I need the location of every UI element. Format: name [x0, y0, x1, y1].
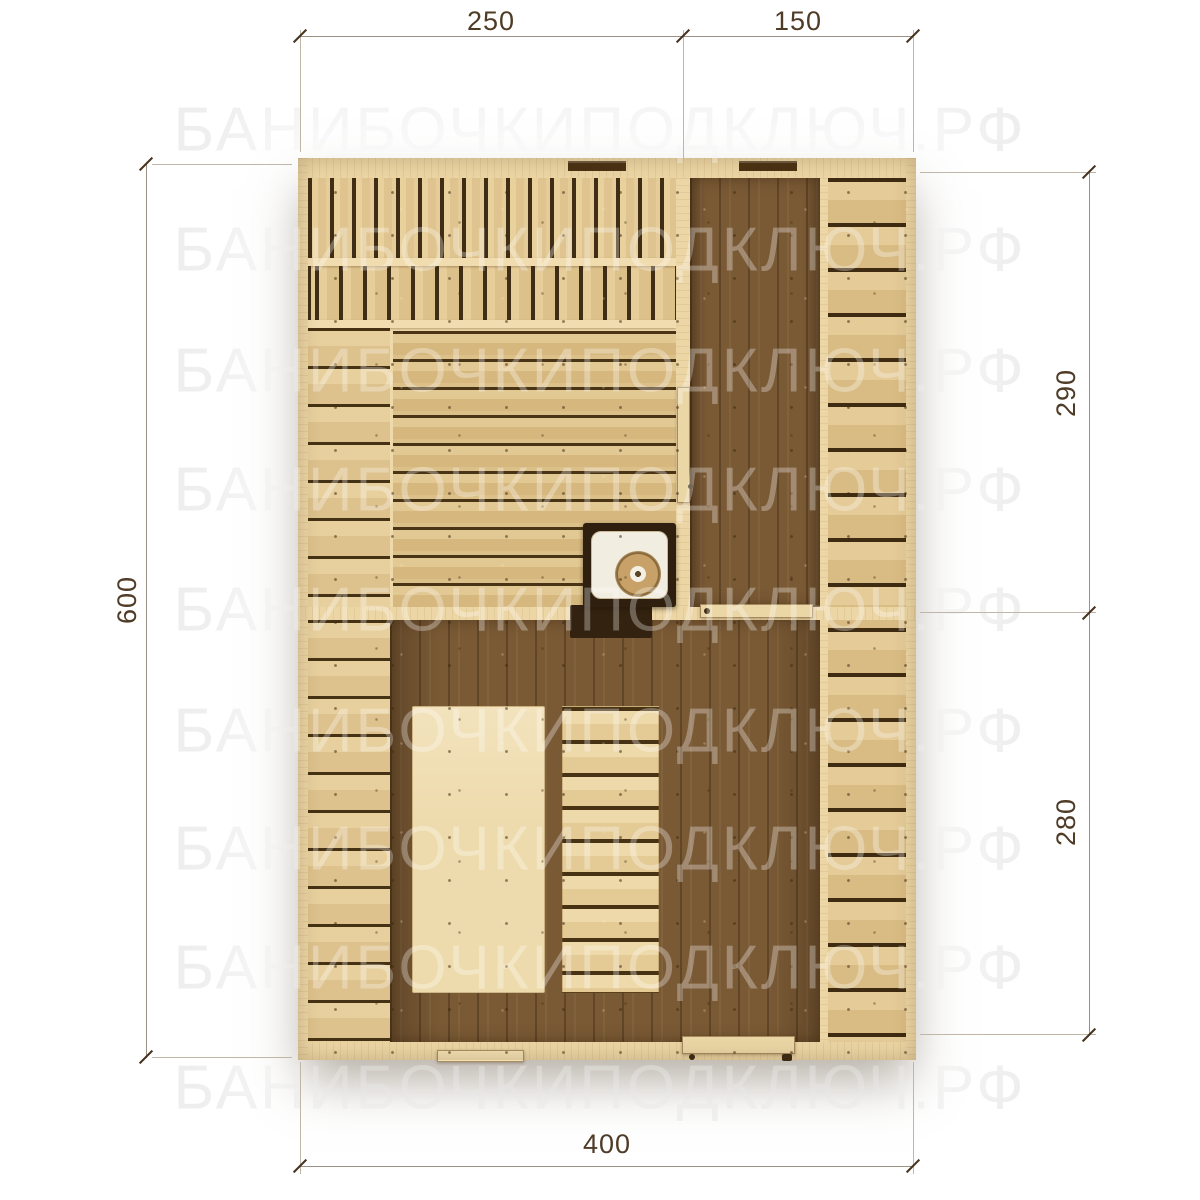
sauna-side-bench: [308, 328, 390, 607]
floor-plan-canvas: БАНИБОЧКИПОДКЛЮЧ.РФ БАНИБОЧКИПОДКЛЮЧ.РФ …: [0, 0, 1200, 1200]
extension-line: [920, 612, 1096, 613]
extension-line: [683, 30, 684, 160]
extension-line: [920, 172, 1096, 173]
dim-label-right-bottom: 280: [1050, 762, 1082, 882]
table: [412, 706, 545, 993]
dim-label-top-right: 150: [738, 5, 858, 37]
extension-line: [300, 30, 301, 152]
dim-label-right-top: 290: [1050, 333, 1082, 453]
dim-line-left: [146, 164, 147, 1058]
stove-chimney-ring: [616, 552, 660, 596]
entrance-door: [682, 1036, 795, 1054]
watermark-text: БАНИБОЧКИПОДКЛЮЧ.РФ: [0, 95, 1200, 166]
extension-line: [152, 1057, 292, 1058]
stove: [583, 523, 676, 607]
dim-tick: [1082, 1028, 1096, 1042]
bench-rail: [308, 258, 676, 266]
dim-tick: [139, 157, 153, 171]
dim-tick: [139, 1050, 153, 1064]
hallway-door: [700, 604, 813, 618]
dim-label-left: 600: [111, 540, 143, 660]
stove-hearth: [570, 605, 652, 638]
dim-tick: [906, 29, 920, 43]
dim-tick: [293, 1159, 307, 1173]
extension-line: [300, 1062, 301, 1174]
watermark-text: БАНИБОЧКИПОДКЛЮЧ.РФ: [0, 95, 1200, 166]
watermark-text: БАНИБОЧКИПОДКЛЮЧ.РФ: [0, 1053, 1200, 1124]
movable-bench: [562, 706, 659, 993]
top-window-1: [568, 161, 626, 171]
dim-tick: [293, 29, 307, 43]
bathhouse-floor-plan: [298, 158, 916, 1060]
stove-top: [591, 531, 668, 599]
dim-line-right: [1089, 172, 1090, 1035]
extension-line: [913, 1062, 914, 1174]
dim-tick: [1082, 606, 1096, 620]
bottom-window-sill: [437, 1050, 524, 1062]
entrance-door-handle: [689, 1054, 695, 1060]
dim-tick: [676, 29, 690, 43]
hallway-floor: [690, 178, 820, 607]
sauna-upper-bench: [308, 178, 676, 258]
stove-chimney-hole: [630, 566, 646, 582]
extension-line: [152, 164, 292, 165]
top-window-2: [739, 161, 797, 171]
bench-rail: [308, 320, 676, 328]
dim-tick: [1082, 165, 1096, 179]
dim-line-top: [300, 36, 913, 37]
extension-line: [913, 30, 914, 152]
sauna-door-handle: [688, 484, 693, 489]
dim-label-bottom: 400: [547, 1128, 667, 1160]
hallway-door-handle: [704, 608, 710, 614]
bottom-wall: [298, 1042, 916, 1060]
dim-tick: [906, 1159, 920, 1173]
left-wall-bench: [308, 620, 390, 1042]
dim-line-bottom: [300, 1166, 913, 1167]
extension-line: [920, 1034, 1096, 1035]
watermark-text: БАНИБОЧКИПОДКЛЮЧ.РФ: [0, 1053, 1200, 1124]
sauna-middle-bench: [308, 266, 676, 320]
entrance-door-latch: [782, 1054, 792, 1061]
dim-label-top-left: 250: [431, 5, 551, 37]
